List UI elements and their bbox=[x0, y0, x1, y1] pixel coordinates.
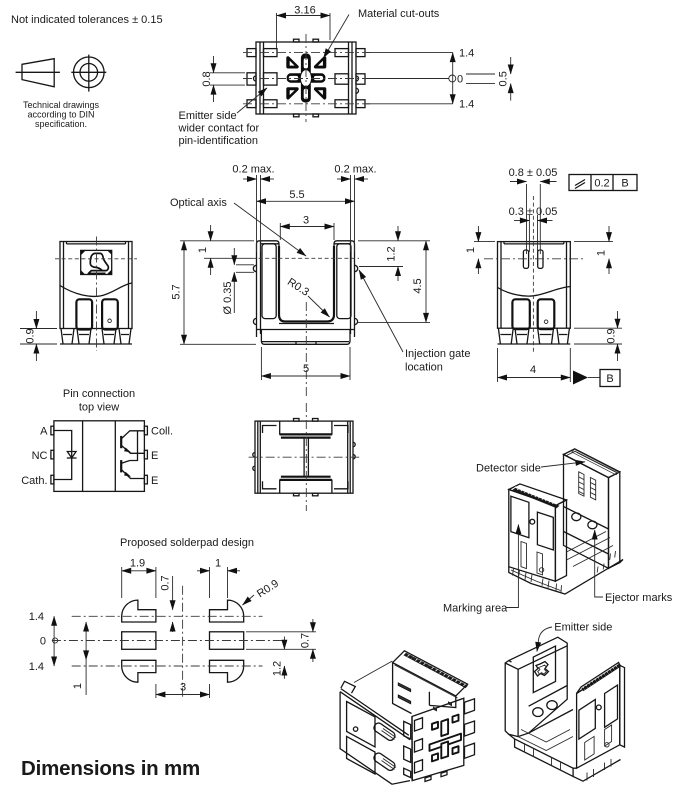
svg-text:1: 1 bbox=[197, 247, 209, 253]
svg-text:1.2: 1.2 bbox=[271, 661, 283, 676]
svg-text:top view: top view bbox=[79, 402, 119, 414]
svg-text:NC: NC bbox=[32, 450, 48, 462]
svg-text:0.9: 0.9 bbox=[24, 328, 36, 343]
svg-text:4.5: 4.5 bbox=[412, 278, 424, 293]
svg-text:Cath.: Cath. bbox=[21, 475, 47, 487]
svg-text:5.7: 5.7 bbox=[170, 284, 182, 299]
svg-text:1.4: 1.4 bbox=[29, 661, 44, 673]
svg-text:Coll.: Coll. bbox=[151, 426, 173, 438]
svg-text:Injection gate: Injection gate bbox=[405, 348, 470, 360]
svg-text:3: 3 bbox=[303, 215, 309, 227]
svg-text:0.3 ± 0.05: 0.3 ± 0.05 bbox=[509, 206, 558, 218]
svg-text:Material cut-outs: Material cut-outs bbox=[358, 8, 440, 20]
svg-text:1: 1 bbox=[595, 250, 607, 256]
svg-text:0: 0 bbox=[457, 74, 463, 86]
svg-text:1: 1 bbox=[215, 558, 221, 570]
svg-text:0.2 max.: 0.2 max. bbox=[232, 164, 274, 176]
svg-text:0.9: 0.9 bbox=[605, 328, 617, 343]
svg-text:wider contact for: wider contact for bbox=[178, 123, 260, 135]
svg-text:1.4: 1.4 bbox=[29, 611, 44, 623]
svg-text:Marking area: Marking area bbox=[443, 603, 508, 615]
svg-text:Ø 0.35: Ø 0.35 bbox=[222, 281, 234, 314]
svg-text:5: 5 bbox=[303, 363, 309, 375]
svg-text:according to DIN: according to DIN bbox=[27, 110, 94, 120]
svg-text:Not indicated tolerances ± 0.1: Not indicated tolerances ± 0.15 bbox=[11, 14, 163, 26]
svg-text:1.4: 1.4 bbox=[459, 99, 474, 111]
svg-text:pin-identification: pin-identification bbox=[179, 135, 259, 147]
svg-text:Pin connection: Pin connection bbox=[63, 388, 135, 400]
svg-text:4: 4 bbox=[530, 364, 536, 376]
svg-text:Dimensions in mm: Dimensions in mm bbox=[21, 757, 200, 780]
svg-text:Proposed solderpad design: Proposed solderpad design bbox=[120, 537, 254, 549]
svg-text:specification.: specification. bbox=[35, 119, 87, 129]
svg-text:Emitter side: Emitter side bbox=[554, 622, 612, 634]
svg-text:0.8 ± 0.05: 0.8 ± 0.05 bbox=[509, 167, 558, 179]
svg-text:0.2: 0.2 bbox=[594, 178, 609, 190]
svg-text:0.2 max.: 0.2 max. bbox=[334, 164, 376, 176]
svg-text:0.8: 0.8 bbox=[201, 71, 213, 86]
svg-text:3: 3 bbox=[180, 682, 186, 694]
svg-text:R0.3: R0.3 bbox=[285, 276, 311, 299]
svg-text:1.2: 1.2 bbox=[385, 246, 397, 261]
svg-text:A: A bbox=[40, 426, 48, 438]
svg-text:R0.9: R0.9 bbox=[255, 578, 281, 601]
svg-text:Ejector marks: Ejector marks bbox=[605, 592, 673, 604]
svg-text:location: location bbox=[405, 362, 443, 374]
svg-text:Technical drawings: Technical drawings bbox=[23, 100, 100, 110]
svg-text:0.5: 0.5 bbox=[497, 71, 509, 86]
svg-text:Emitter side: Emitter side bbox=[179, 110, 237, 122]
svg-text:E: E bbox=[151, 475, 158, 487]
svg-text:1: 1 bbox=[465, 247, 477, 253]
svg-text:E: E bbox=[151, 450, 158, 462]
svg-text:Optical axis: Optical axis bbox=[170, 197, 227, 209]
svg-text:5.5: 5.5 bbox=[289, 189, 304, 201]
svg-text:1.9: 1.9 bbox=[130, 558, 145, 570]
svg-text:0: 0 bbox=[40, 635, 46, 647]
svg-text:0.7: 0.7 bbox=[159, 575, 171, 590]
svg-text:1.4: 1.4 bbox=[459, 48, 474, 60]
svg-text:3.16: 3.16 bbox=[294, 5, 315, 17]
svg-text:B: B bbox=[606, 373, 613, 385]
svg-text:0.7: 0.7 bbox=[299, 633, 311, 648]
svg-text:Detector side: Detector side bbox=[476, 463, 541, 475]
svg-text:1: 1 bbox=[72, 683, 84, 689]
svg-text:B: B bbox=[621, 178, 628, 190]
